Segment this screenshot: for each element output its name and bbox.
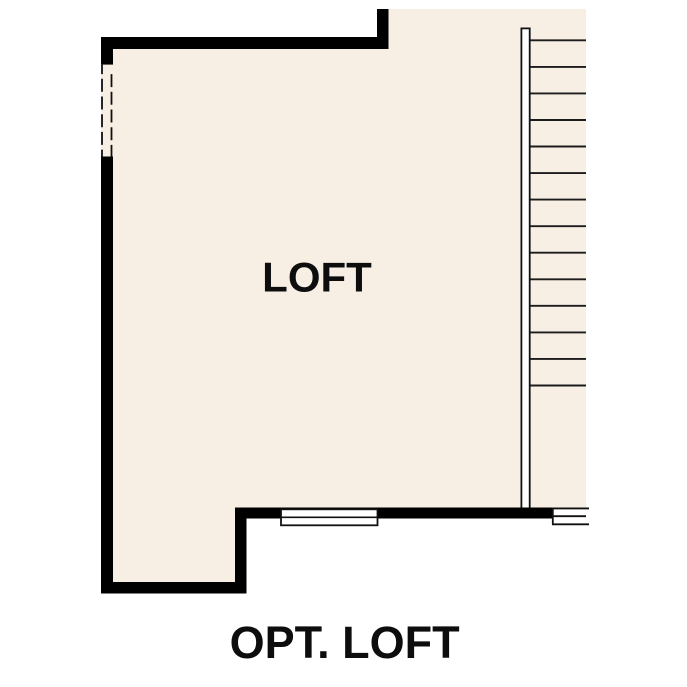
svg-text:OPT. LOFT: OPT. LOFT <box>230 617 460 668</box>
svg-text:LOFT: LOFT <box>262 254 372 301</box>
